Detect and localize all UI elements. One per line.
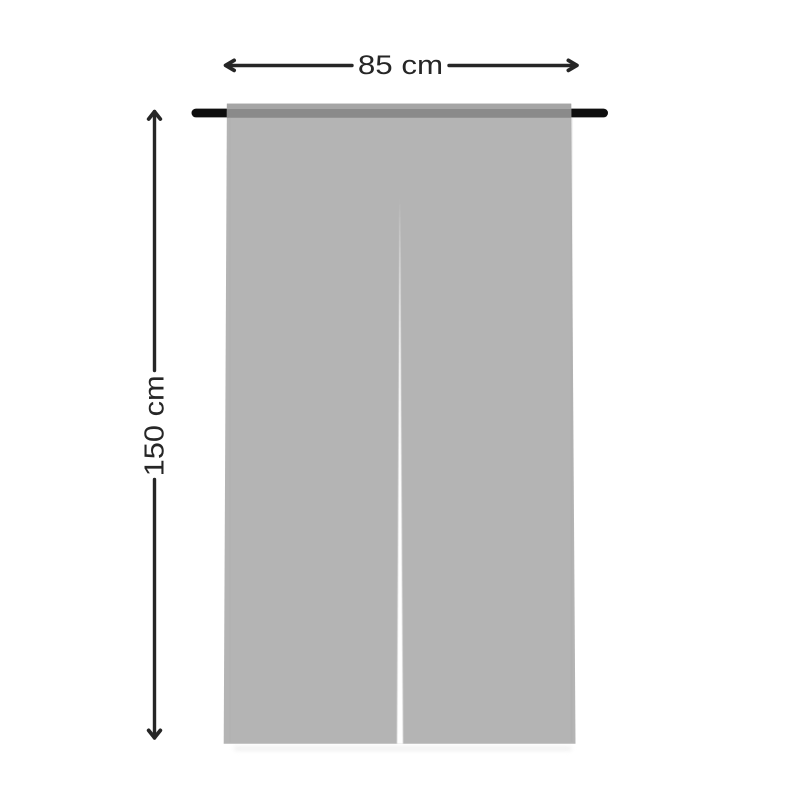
svg-text:150 cm: 150 cm xyxy=(140,375,170,476)
svg-text:85 cm: 85 cm xyxy=(358,51,443,81)
